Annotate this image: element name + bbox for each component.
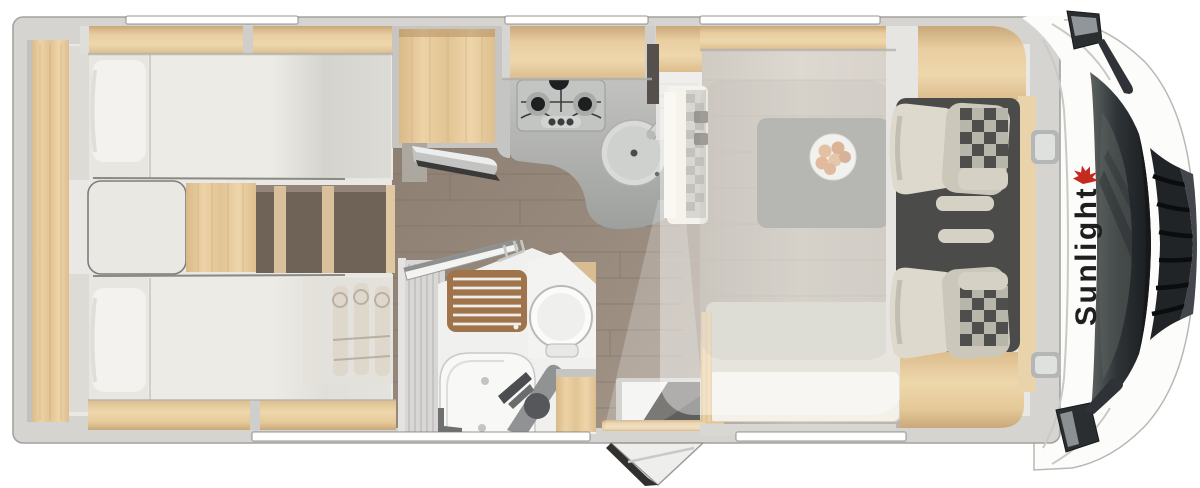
svg-text:Sunlight: Sunlight — [1070, 186, 1103, 326]
